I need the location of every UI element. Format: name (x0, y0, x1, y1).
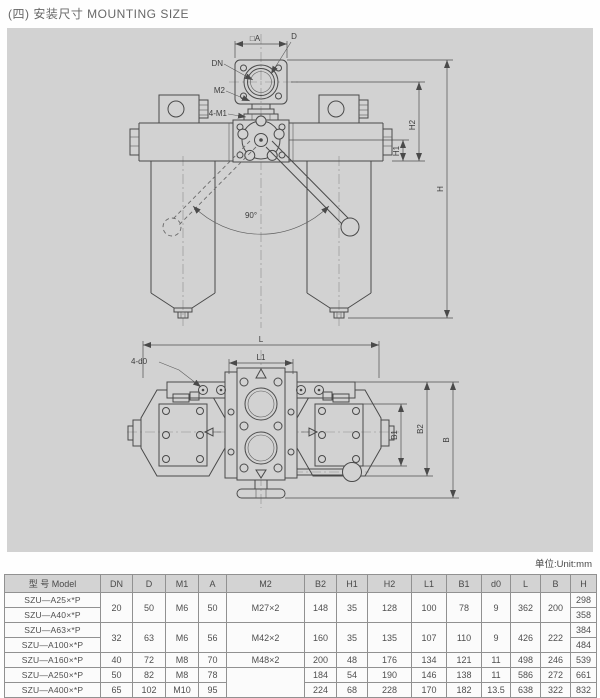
header-b1: B1 (447, 575, 482, 593)
angle-label: 90° (245, 211, 257, 220)
table-cell: 832 (571, 683, 597, 698)
dim-label-dn: DN (211, 59, 223, 68)
table-cell: 170 (412, 683, 447, 698)
header-a: A (199, 575, 227, 593)
table-cell: 128 (368, 593, 412, 623)
header-b2: B2 (305, 575, 337, 593)
handle-ball-knob (341, 218, 359, 236)
cover-plate-left (159, 392, 207, 466)
dim-label-4d0: 4-d0 (131, 357, 148, 366)
plan-valve-body (237, 368, 285, 480)
dim-label-l1: L1 (257, 353, 266, 362)
table-cell: 9 (482, 593, 511, 623)
table-cell: 110 (447, 623, 482, 653)
table-cell: 146 (412, 668, 447, 683)
front-view-dimensions: H2 H1 H (287, 60, 453, 318)
table-cell: 358 (571, 608, 597, 623)
table-cell: 95 (199, 683, 227, 698)
table-row: SZU—A250×*P 50 82 M8 78 184 54 190 146 1… (5, 668, 597, 683)
dim-label-m2: M2 (214, 86, 226, 95)
table-cell: 78 (199, 668, 227, 683)
plan-filter-head-left (128, 390, 225, 476)
header-h: H (571, 575, 597, 593)
table-cell: 102 (133, 683, 166, 698)
table-cell: 56 (199, 623, 227, 653)
mounting-size-table: 型 号 Model DN D M1 A M2 B2 H1 H2 L1 B1 d0… (4, 574, 597, 698)
table-cell: 40 (101, 653, 133, 668)
table-cell: 35 (337, 593, 368, 623)
table-cell: M48×2 (227, 653, 305, 668)
table-cell: 48 (337, 653, 368, 668)
table-cell: 20 (101, 593, 133, 623)
table-cell: 484 (571, 638, 597, 653)
table-cell-no-value (227, 668, 305, 698)
table-cell: 50 (101, 668, 133, 683)
table-cell: M6 (166, 623, 199, 653)
table-cell: 11 (482, 668, 511, 683)
header-dn: DN (101, 575, 133, 593)
table-cell: M8 (166, 668, 199, 683)
table-cell: 322 (541, 683, 571, 698)
table-cell: M42×2 (227, 623, 305, 653)
plan-ball-knob (343, 463, 362, 482)
table-row: SZU—A63×*P 32 63 M6 56 M42×2 160 35 135 … (5, 623, 597, 638)
table-row: SZU—A25×*P 20 50 M6 50 M27×2 148 35 128 … (5, 593, 597, 608)
table-cell: 50 (199, 593, 227, 623)
dim-label-b1: B1 (390, 430, 399, 440)
table-header-row: 型 号 Model DN D M1 A M2 B2 H1 H2 L1 B1 d0… (5, 575, 597, 593)
header-h1: H1 (337, 575, 368, 593)
left-hex-plug (130, 129, 139, 155)
header-l1: L1 (412, 575, 447, 593)
table-cell: 200 (541, 593, 571, 623)
filter-bowl-right (307, 161, 371, 318)
table-cell: 121 (447, 653, 482, 668)
right-hex-plug (383, 129, 392, 155)
dim-label-h: H (436, 186, 445, 192)
table-cell: 135 (368, 623, 412, 653)
technical-drawing: 90° □A D DN M2 4-M1 H2 (7, 28, 593, 552)
table-cell: 78 (447, 593, 482, 623)
dim-label-4m1: 4-M1 (209, 109, 228, 118)
table-cell: 68 (337, 683, 368, 698)
table-cell: 70 (199, 653, 227, 668)
dim-label-b: B (442, 437, 451, 442)
table-row: SZU—A160×*P 40 72 M8 70 M48×2 200 48 176… (5, 653, 597, 668)
table-cell: 9 (482, 623, 511, 653)
table-cell: 107 (412, 623, 447, 653)
table-cell: M27×2 (227, 593, 305, 623)
table-cell: SZU—A400×*P (5, 683, 101, 698)
table-cell: 11 (482, 653, 511, 668)
table-cell: 190 (368, 668, 412, 683)
side-plate-left (225, 372, 237, 478)
dim-label-l: L (259, 335, 264, 344)
table-cell: 63 (133, 623, 166, 653)
dim-label-h1: H1 (392, 145, 401, 156)
table-cell: 176 (368, 653, 412, 668)
table-cell: 384 (571, 623, 597, 638)
table-cell: SZU—A63×*P (5, 623, 101, 638)
front-view: 90° □A D DN M2 4-M1 H2 (130, 32, 453, 328)
cover-plate-right (315, 392, 363, 466)
table-cell: 298 (571, 593, 597, 608)
table-cell: 13.5 (482, 683, 511, 698)
table-cell: 498 (511, 653, 541, 668)
table-cell: 228 (368, 683, 412, 698)
table-cell: SZU—A160×*P (5, 653, 101, 668)
table-cell: 82 (133, 668, 166, 683)
filter-bowl-left (151, 161, 215, 318)
table-cell: 661 (571, 668, 597, 683)
table-cell: 50 (133, 593, 166, 623)
header-m1: M1 (166, 575, 199, 593)
table-cell: 638 (511, 683, 541, 698)
table-cell: M8 (166, 653, 199, 668)
table-cell: 160 (305, 623, 337, 653)
header-m2: M2 (227, 575, 305, 593)
table-cell: M6 (166, 593, 199, 623)
table-cell: 200 (305, 653, 337, 668)
header-d0: d0 (482, 575, 511, 593)
table-cell: 184 (305, 668, 337, 683)
header-model: 型 号 Model (5, 575, 101, 593)
table-cell: SZU—A100×*P (5, 638, 101, 653)
header-h2: H2 (368, 575, 412, 593)
table-cell: 362 (511, 593, 541, 623)
dim-label-square-a: □A (250, 34, 261, 43)
table-cell: 138 (447, 668, 482, 683)
left-gauge-block (159, 95, 208, 123)
table-cell: 134 (412, 653, 447, 668)
table-cell: 54 (337, 668, 368, 683)
table-cell: 148 (305, 593, 337, 623)
table-cell: SZU—A25×*P (5, 593, 101, 608)
page-title: (四) 安装尺寸 MOUNTING SIZE (8, 5, 189, 22)
table-cell: 32 (101, 623, 133, 653)
table-cell: 586 (511, 668, 541, 683)
header-d: D (133, 575, 166, 593)
mounting-size-drawing-panel: 90° □A D DN M2 4-M1 H2 (7, 28, 593, 552)
header-b: B (541, 575, 571, 593)
plan-view: L L1 4-d0 B1 B2 B (127, 335, 459, 508)
table-cell: 222 (541, 623, 571, 653)
plan-filter-head-right (297, 390, 394, 476)
side-plate-right (285, 372, 297, 478)
table-cell: 182 (447, 683, 482, 698)
table-cell: 539 (571, 653, 597, 668)
table-cell: M10 (166, 683, 199, 698)
table-cell: 426 (511, 623, 541, 653)
table-cell: 72 (133, 653, 166, 668)
unit-note: 单位:Unit:mm (535, 556, 592, 570)
dim-label-h2: H2 (408, 119, 417, 130)
table-cell: SZU—A40×*P (5, 608, 101, 623)
dim-label-d: D (291, 32, 297, 41)
table-cell: 35 (337, 623, 368, 653)
right-gauge-block (319, 95, 368, 123)
table-cell: 224 (305, 683, 337, 698)
table-cell: 246 (541, 653, 571, 668)
plan-view-dimensions: B1 B2 B (285, 382, 459, 498)
table-cell: SZU—A250×*P (5, 668, 101, 683)
dim-label-b2: B2 (416, 424, 425, 434)
table-cell: 100 (412, 593, 447, 623)
header-l: L (511, 575, 541, 593)
table-cell: 272 (541, 668, 571, 683)
table-cell: 65 (101, 683, 133, 698)
